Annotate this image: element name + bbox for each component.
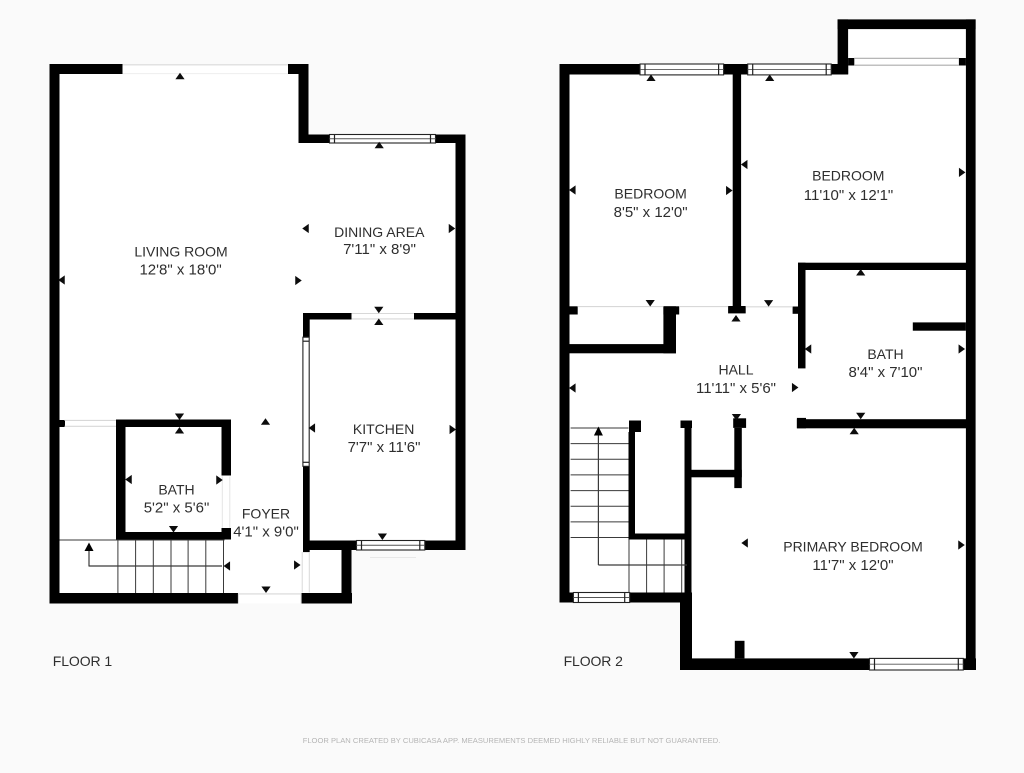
svg-text:8'4" x 7'10": 8'4" x 7'10" [849, 364, 923, 381]
svg-text:BEDROOM: BEDROOM [812, 167, 884, 183]
svg-text:7'7" x 11'6": 7'7" x 11'6" [348, 439, 421, 456]
svg-text:4'1" x 9'0": 4'1" x 9'0" [233, 524, 299, 541]
svg-text:12'8" x 18'0": 12'8" x 18'0" [139, 262, 221, 279]
svg-text:FLOOR 2: FLOOR 2 [564, 653, 624, 669]
svg-text:BEDROOM: BEDROOM [614, 186, 686, 202]
svg-text:HALL: HALL [718, 362, 753, 378]
svg-text:11'7" x 12'0": 11'7" x 12'0" [812, 557, 893, 574]
svg-text:8'5" x 12'0": 8'5" x 12'0" [614, 204, 688, 221]
svg-text:PRIMARY BEDROOM: PRIMARY BEDROOM [783, 539, 923, 555]
svg-text:KITCHEN: KITCHEN [353, 421, 414, 437]
svg-text:BATH: BATH [867, 346, 903, 362]
svg-text:FLOOR 1: FLOOR 1 [53, 653, 113, 669]
svg-text:5'2" x 5'6": 5'2" x 5'6" [144, 500, 210, 517]
svg-text:11'11" x 5'6": 11'11" x 5'6" [696, 380, 776, 397]
svg-text:DINING AREA: DINING AREA [334, 224, 425, 240]
svg-text:BATH: BATH [158, 482, 194, 498]
svg-text:11'10" x 12'1": 11'10" x 12'1" [804, 187, 894, 204]
svg-text:FOYER: FOYER [242, 506, 290, 522]
svg-text:FLOOR PLAN CREATED BY CUBICASA: FLOOR PLAN CREATED BY CUBICASA APP. MEAS… [303, 736, 721, 745]
svg-text:LIVING ROOM: LIVING ROOM [134, 244, 227, 260]
svg-text:7'11" x 8'9": 7'11" x 8'9" [343, 241, 416, 258]
